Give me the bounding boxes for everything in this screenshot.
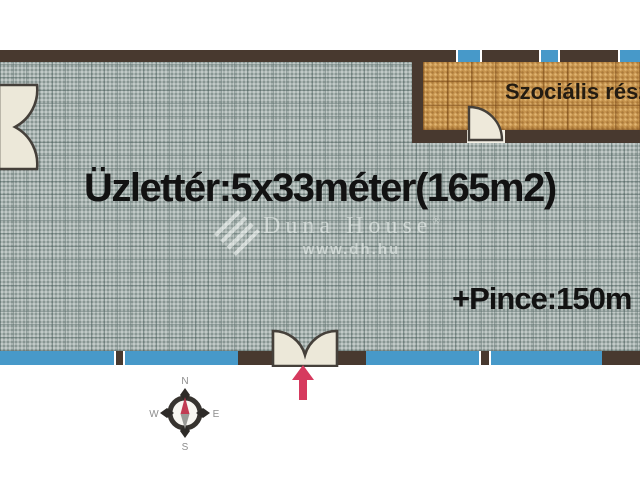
window-segment <box>491 351 602 365</box>
bottom-wall-segment <box>238 351 272 365</box>
window-segment <box>125 351 238 365</box>
entrance-double-door-icon <box>270 327 340 367</box>
bottom-wall-segment <box>481 351 489 365</box>
bottom-wall-segment <box>116 351 123 365</box>
partition-wall-horizontal <box>423 130 640 143</box>
registered-mark: ® <box>432 216 440 227</box>
partition-wall-vertical <box>412 50 423 143</box>
top-wall <box>0 50 423 62</box>
compass-west-label: W <box>149 409 159 420</box>
watermark-logo-icon <box>214 210 262 258</box>
top-wall-segment <box>560 50 618 62</box>
compass-north-label: N <box>181 376 188 387</box>
bottom-wall-segment <box>338 351 366 365</box>
window-segment <box>366 351 479 365</box>
compass-east-label: E <box>213 409 220 420</box>
left-double-door-icon <box>0 82 46 172</box>
watermark-url: www.dh.hu <box>263 241 440 258</box>
bottom-wall-segment <box>602 351 640 365</box>
top-wall-segment <box>423 50 456 62</box>
compass-south-label: S <box>182 442 189 452</box>
basement-label: +Pince:150m <box>452 281 631 317</box>
social-door-icon <box>466 100 508 142</box>
shop-area-title: Üzlettér:5x33méter(165m2) <box>84 166 556 211</box>
floorplan-image: N W E S Duna House® www.dh.hu Szociális … <box>0 0 640 480</box>
watermark: Duna House® www.dh.hu <box>221 213 440 258</box>
window-segment <box>620 50 640 62</box>
top-wall-segment <box>482 50 539 62</box>
window-segment <box>0 351 114 365</box>
window-segment <box>458 50 480 62</box>
compass-icon: N W E S <box>147 372 223 452</box>
social-area-label: Szociális rész <box>505 79 640 105</box>
entrance-arrow-icon <box>291 365 315 401</box>
window-segment <box>541 50 558 62</box>
watermark-brand: Duna House® <box>263 213 440 240</box>
